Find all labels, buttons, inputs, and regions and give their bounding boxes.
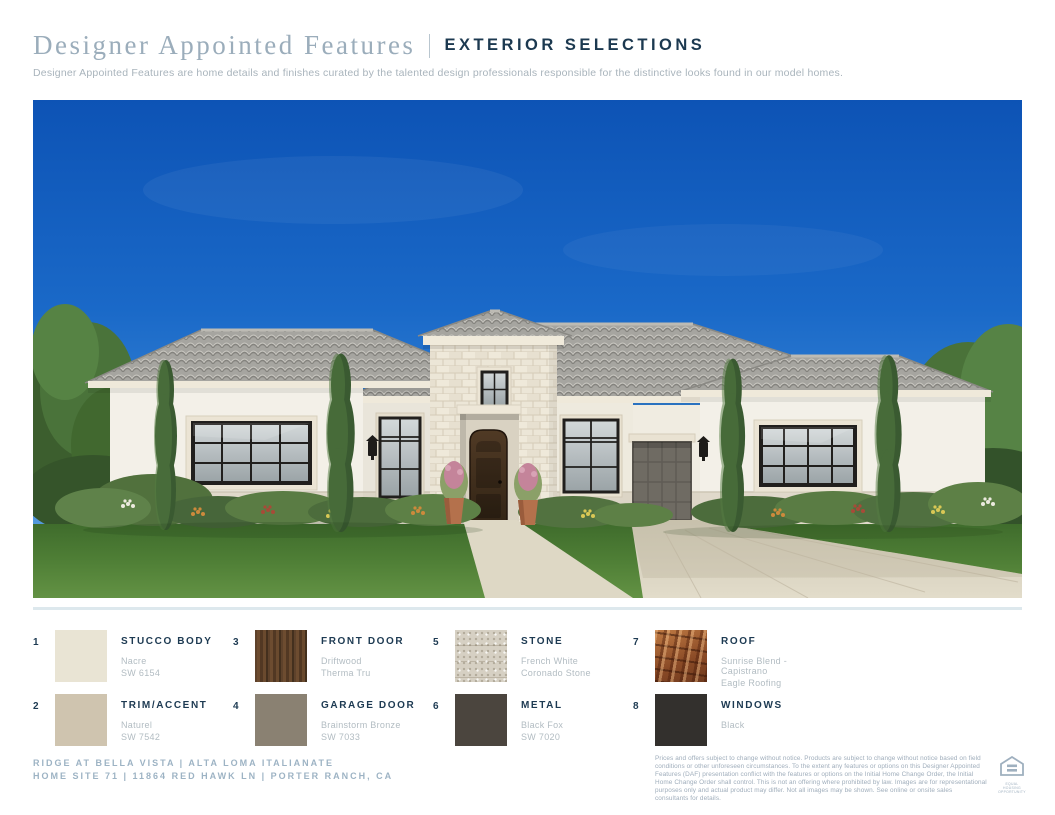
house-illustration — [33, 100, 1022, 598]
left-transom-window — [376, 413, 424, 501]
selection-detail-1: Black — [721, 720, 783, 730]
selection-item: 1 STUCCO BODY Nacre SW 6154 — [33, 630, 233, 688]
selection-swatch — [255, 630, 307, 682]
selection-detail-1: Naturel — [121, 720, 207, 730]
selection-number: 6 — [433, 694, 455, 712]
selection-detail-1: Sunrise Blend - Capistrano — [721, 656, 833, 676]
selection-item: 7 ROOF Sunrise Blend - Capistrano Eagle … — [633, 630, 833, 688]
selection-label: ROOF — [721, 636, 833, 647]
section-divider — [33, 607, 1022, 610]
selection-label: GARAGE DOOR — [321, 700, 415, 711]
selection-detail-2: Coronado Stone — [521, 668, 591, 678]
selection-number: 1 — [33, 630, 55, 648]
community-line-1: RIDGE AT BELLA VISTA | ALTA LOMA ITALIAN… — [33, 757, 393, 770]
selection-item: 2 TRIM/ACCENT Naturel SW 7542 — [33, 694, 233, 746]
selection-detail-2: SW 7020 — [521, 732, 563, 742]
selection-swatch — [655, 694, 707, 746]
selections-grid: 1 STUCCO BODY Nacre SW 6154 2 TRIM/ACCEN… — [33, 630, 1022, 746]
selection-label: STUCCO BODY — [121, 636, 213, 647]
legal-disclaimer: Prices and offers subject to change with… — [655, 755, 987, 804]
selection-number: 3 — [233, 630, 255, 648]
selection-item: 4 GARAGE DOOR Brainstorm Bronze SW 7033 — [233, 694, 433, 746]
selection-number: 4 — [233, 694, 255, 712]
selection-label: TRIM/ACCENT — [121, 700, 207, 711]
selection-number: 5 — [433, 630, 455, 648]
right-window — [754, 420, 862, 492]
page-title: Designer Appointed Features EXTERIOR SEL… — [33, 30, 1022, 61]
selection-swatch — [255, 694, 307, 746]
selection-swatch — [455, 630, 507, 682]
selection-label: WINDOWS — [721, 700, 783, 711]
exterior-rendering — [33, 100, 1022, 598]
selection-detail-1: Black Fox — [521, 720, 563, 730]
selection-detail-1: French White — [521, 656, 591, 666]
header: Designer Appointed Features EXTERIOR SEL… — [33, 30, 1022, 79]
equal-housing-icon — [1000, 756, 1024, 776]
title-divider — [429, 34, 430, 58]
left-window — [186, 416, 317, 490]
selection-label: FRONT DOOR — [321, 636, 404, 647]
community-line-2: HOME SITE 71 | 11864 RED HAWK LN | PORTE… — [33, 770, 393, 783]
selection-swatch — [55, 630, 107, 682]
selection-number: 8 — [633, 694, 655, 712]
selection-number: 2 — [33, 694, 55, 712]
selection-detail-2 — [721, 732, 783, 741]
selection-detail-2: SW 6154 — [121, 668, 213, 678]
page: Designer Appointed Features EXTERIOR SEL… — [0, 0, 1055, 815]
eho-label: EQUAL HOUSING OPPORTUNITY — [996, 782, 1028, 794]
selection-swatch — [655, 630, 707, 682]
selection-detail-2: Therma Tru — [321, 668, 404, 678]
title-serif: Designer Appointed Features — [33, 30, 415, 61]
selection-detail-1: Nacre — [121, 656, 213, 666]
selection-item: 5 STONE French White Coronado Stone — [433, 630, 633, 688]
community-info: RIDGE AT BELLA VISTA | ALTA LOMA ITALIAN… — [33, 757, 393, 783]
selection-swatch — [455, 694, 507, 746]
selection-detail-2: SW 7033 — [321, 732, 415, 742]
selection-item: 3 FRONT DOOR Driftwood Therma Tru — [233, 630, 433, 688]
equal-housing-logo: EQUAL HOUSING OPPORTUNITY — [996, 756, 1028, 794]
subtitle: Designer Appointed Features are home det… — [33, 67, 1022, 79]
selection-detail-1: Driftwood — [321, 656, 404, 666]
selection-label: METAL — [521, 700, 563, 711]
selection-swatch — [55, 694, 107, 746]
selection-item: 6 METAL Black Fox SW 7020 — [433, 694, 633, 746]
title-caps: EXTERIOR SELECTIONS — [444, 36, 705, 55]
selection-number: 7 — [633, 630, 655, 648]
selection-detail-2: SW 7542 — [121, 732, 207, 742]
selection-label: STONE — [521, 636, 591, 647]
selection-item: 8 WINDOWS Black — [633, 694, 833, 746]
right-transom-window — [560, 415, 622, 497]
selection-detail-1: Brainstorm Bronze — [321, 720, 415, 730]
selection-detail-2: Eagle Roofing — [721, 678, 833, 688]
